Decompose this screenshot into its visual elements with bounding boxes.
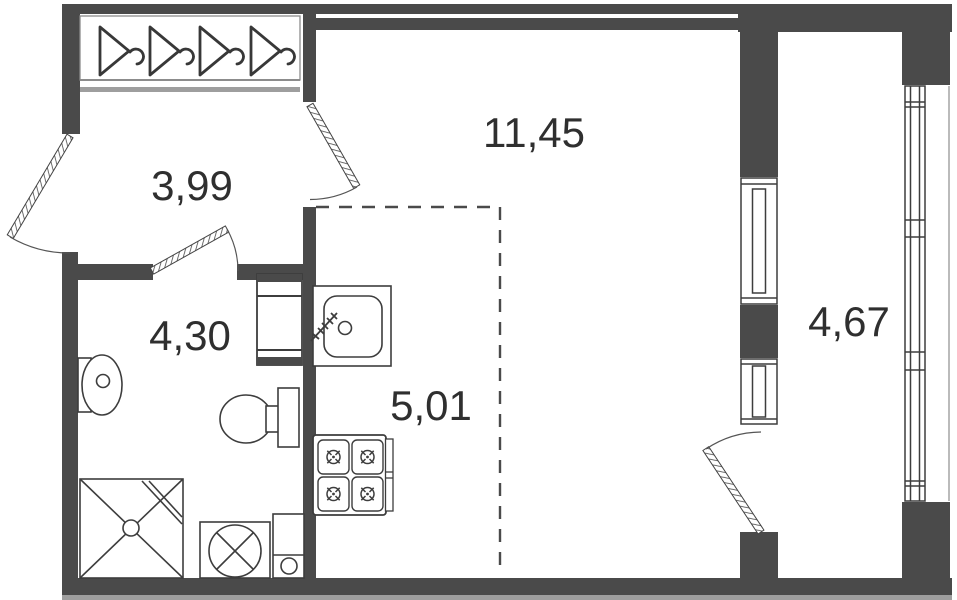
wall-left-lower — [62, 252, 78, 578]
toilet-icon — [220, 388, 299, 447]
wardrobe — [80, 16, 300, 92]
wash-basin-icon — [78, 355, 122, 415]
room-label-balcony: 4,67 — [808, 298, 890, 345]
bottom-shadow — [62, 595, 952, 600]
wardrobe-shelf — [80, 87, 300, 92]
room-door-arc — [310, 187, 357, 200]
wall-hall-divider-upper — [303, 14, 316, 102]
window-balcony-block — [741, 359, 777, 424]
pier-southeast — [902, 502, 950, 590]
room-door — [307, 103, 360, 199]
room-door-leaf — [307, 103, 360, 188]
balcony-door-leaf — [703, 447, 764, 534]
wall-balcony-pier-lower — [740, 532, 778, 578]
wall-left-upper — [62, 4, 80, 134]
wall-hall-divider-lower — [303, 207, 316, 578]
entrance-door-arc — [10, 237, 70, 253]
entrance-door — [7, 134, 73, 253]
shower-icon — [80, 479, 183, 578]
wall-balcony-divider-upper — [740, 4, 778, 177]
bathroom-door-arc — [227, 229, 238, 271]
washing-machine-icon — [200, 522, 270, 578]
pier-northeast — [902, 32, 950, 85]
ventilation-shaft-icon — [257, 274, 302, 365]
entrance-door-leaf — [7, 134, 73, 238]
wall-bath-north-left — [62, 264, 153, 280]
floor-plan: 3,99 11,45 4,30 5,01 4,67 — [0, 0, 957, 600]
riser-icon — [273, 514, 304, 578]
window-living-room — [741, 178, 777, 304]
balcony-door — [703, 432, 764, 534]
kitchen-sink-icon — [311, 286, 391, 366]
room-label-living: 11,45 — [483, 109, 585, 156]
balcony-glazing — [905, 86, 925, 501]
room-label-hallway: 3,99 — [151, 162, 233, 209]
wall-bottom — [62, 578, 952, 595]
bathroom-door-leaf — [150, 226, 228, 274]
wall-top-inner — [305, 18, 741, 30]
room-label-kitchen: 5,01 — [390, 382, 472, 429]
floor-plan-canvas: 3,99 11,45 4,30 5,01 4,67 — [0, 0, 957, 600]
bathroom-door — [150, 226, 238, 274]
wall-balcony-pier-middle — [740, 305, 778, 358]
kitchen-fixtures — [311, 286, 393, 515]
stove-icon — [313, 435, 393, 515]
room-label-bathroom: 4,30 — [149, 312, 231, 359]
balcony-door-arc — [706, 432, 761, 449]
